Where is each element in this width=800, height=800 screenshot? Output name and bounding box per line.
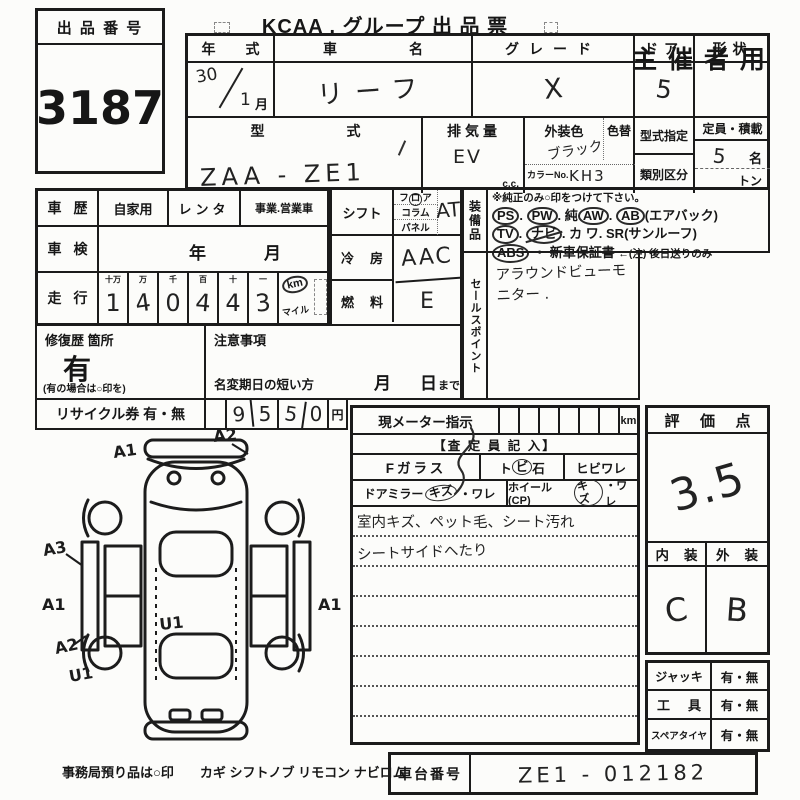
assessor-note-row [353, 627, 637, 657]
meter-digit-cell [580, 408, 600, 435]
km-unit: km [281, 273, 310, 295]
damage-mark: U1 [67, 663, 94, 686]
check-tick [398, 140, 406, 155]
equip-ab-suffix: (エアバック) [645, 208, 718, 223]
headlight-left [168, 472, 180, 484]
meter-unit: km [620, 408, 637, 435]
year-cell: 30 1 月 [188, 63, 275, 118]
model-label: 型式 [251, 121, 361, 141]
year-value: 30 [194, 64, 219, 87]
equip-ab: AB [616, 207, 645, 226]
car-damage-diagram: A1 A2 A3 A1 A2 U1 U1 A1 [36, 428, 348, 750]
mileage-unit-cell: km マイル [279, 273, 313, 323]
color-no-label: カラーNo. [527, 168, 569, 181]
assessor-note-1: 室内キズ、ペット毛、シート汚れ [353, 511, 575, 532]
spare-tire-value: 有・無 [712, 720, 767, 749]
sales-point-box: セールスポイント アラウンドビューモニター . [462, 251, 640, 400]
door-value: 5 [654, 74, 674, 105]
lot-number-label: 出 品 番 号 [38, 11, 162, 45]
recycle-digit: 5 [277, 398, 307, 429]
exterior-color-cell: 外装色 色替 ブラック カラーNo. KH3 [525, 118, 635, 193]
shift-label: シフト [332, 190, 394, 236]
load-unit: トン [738, 172, 762, 189]
displacement-label: 排気量 [423, 120, 525, 142]
mileage-digit: 4 [127, 283, 160, 323]
sales-point-label: セールスポイント [464, 253, 488, 398]
exterior-label: 外装 [716, 544, 758, 564]
color-no-divider [525, 164, 635, 165]
caution-box: 注意事項 名変期日の短い方 月 日 まで [204, 324, 462, 400]
dotted-mark-left [214, 22, 230, 33]
meter-digit-cell [520, 408, 540, 435]
model-value: ZAA - ZE1 [200, 158, 367, 192]
assessor-note-row [353, 597, 637, 627]
mileage-digit: 1 [99, 285, 127, 321]
lot-number-value: 3187 [38, 45, 162, 171]
sep: . [599, 226, 603, 241]
repair-box: 修復歴 箇所 有 (有の場合は○印を) [35, 324, 206, 400]
equipment-label: 装備品 [464, 190, 488, 251]
recycle-amount-box: 9 5 5 0 円 [204, 398, 348, 430]
car-name-value: リーフ [316, 67, 431, 112]
hood-line [151, 502, 241, 510]
capacity-value: 5 [712, 143, 727, 168]
specs-table: シフト フロア コラム パネル AT 冷房 AAC 燃料 E [330, 188, 462, 326]
accessories-box: ジャッキ 有・無 工具 有・無 スペアタイヤ 有・無 [645, 660, 770, 752]
assessor-note-row [353, 567, 637, 597]
mileage-digit: 4 [219, 285, 247, 321]
sep: . [562, 226, 566, 241]
assessor-header: 【査 定 員 記 入】 [353, 435, 637, 455]
assessor-note-row [353, 687, 637, 717]
damage-mark: A2 [53, 634, 80, 657]
damage-mark: A1 [318, 595, 342, 614]
year-label: 年式 [202, 39, 260, 59]
left-sill-panel [82, 542, 98, 650]
rename-suffix: まで [438, 377, 460, 393]
rename-day: 日 [420, 369, 437, 394]
mileage-digit: 3 [247, 284, 279, 323]
stone-chip-circled: ビ [512, 459, 533, 475]
capacity-label: 定員・積載 [695, 118, 770, 141]
capacity-divider [695, 168, 770, 169]
shift-value: AT [435, 197, 461, 223]
fender-fl [84, 500, 89, 536]
interior-grade: C [648, 567, 707, 652]
mileage-digit: 4 [187, 284, 218, 322]
vehicle-table: 年式 車名 グレード ドア 形状 30 1 月 リーフ X 5 型式 ZAA -… [185, 33, 770, 190]
color-no-value: KH3 [569, 167, 606, 185]
assessor-note-row [353, 657, 637, 687]
ac-label: 冷房 [341, 248, 383, 267]
door-mirror-label: ドアミラー [364, 485, 424, 502]
car-body [145, 462, 247, 732]
fuel-label: 燃料 [341, 292, 383, 311]
meter-box: 現メーター指示 km 【査 定 員 記 入】 Fガラス トビ石 ヒビワレ ドアミ… [350, 405, 640, 745]
fender-rr [299, 635, 304, 671]
damage-mark: U1 [158, 613, 184, 634]
shift-options-cell: フロア コラム パネル AT [394, 190, 460, 236]
equip-kawa: カ ワ [569, 226, 599, 241]
grade-value: X [542, 73, 564, 106]
office-deposit-note: 事務局預り品は○印 [62, 762, 174, 781]
digit-header: 十 [219, 274, 247, 285]
meter-digit-cell [600, 408, 620, 435]
recycle-digit: 9 [226, 399, 255, 430]
equip-aw-prefix: 純 [565, 208, 578, 223]
wheel-options-rest: ・ワレ [605, 477, 637, 509]
mileage-label: 走行 [48, 288, 88, 308]
sep: . [519, 208, 523, 223]
footer-note-row: 事務局預り品は○印 カギ シフトノブ リモコン ナビロム [62, 762, 406, 781]
inspection-cell: 年 月 [99, 227, 327, 273]
mileage-digit: 0 [159, 285, 187, 321]
rear-light-right [202, 710, 222, 720]
chassis-value: ZE1 - 012182 [471, 753, 756, 795]
equipment-note: ※純正のみ○印をつけて下さい。 [492, 191, 768, 207]
recycle-digit: 5 [253, 400, 279, 428]
recycle-label: リサイクル券 有・無 [37, 400, 204, 428]
windshield [160, 532, 232, 576]
shift-column-option: コラム [394, 205, 438, 220]
lot-number-box: 出 品 番 号 3187 [35, 8, 165, 174]
deposit-items: カギ シフトノブ リモコン ナビロム [200, 762, 406, 781]
grade-label: グレード [473, 36, 635, 63]
mark-leader-a3 [66, 554, 83, 566]
equipment-box: 装備品 ※純正のみ○印をつけて下さい。 PS. PW. 純AW. AB(エアバッ… [462, 188, 770, 253]
car-name-cell: リーフ [275, 63, 473, 118]
equip-sr: SR [606, 226, 624, 241]
equip-navi: ナビ [526, 225, 562, 244]
use-business: 事業.営業車 [241, 191, 327, 227]
stone-chip-option: トビ石 [481, 455, 565, 481]
recycle-label-box: リサイクル券 有・無 [35, 398, 206, 430]
sep: . [609, 208, 613, 223]
dotted-mark-right [544, 22, 558, 33]
right-sill-panel [294, 542, 310, 650]
digit-header: 十万 [99, 274, 127, 285]
shift-panel-option: パネル [394, 220, 438, 235]
wheel-front-left [89, 502, 121, 534]
shift-floor-f3: ア [422, 193, 432, 204]
shift-floor-circled: ロ [409, 193, 423, 206]
history-table: 車歴 自家用 レンタ 事業.営業車 車検 年 月 走行 十万1 万4 千0 百4… [35, 188, 330, 326]
chassis-box: 車台番号 ZE1 - 012182 [388, 752, 758, 795]
tool-value: 有・無 [712, 691, 767, 720]
door-cell: 5 [635, 63, 695, 118]
rename-label: 名変期日の短い方 [214, 374, 314, 393]
shape-label: 形状 [695, 36, 770, 63]
chassis-label: 車台番号 [391, 755, 471, 792]
capacity-cell: 定員・積載 5 名 トン [695, 118, 770, 193]
handwritten-squiggle [441, 424, 493, 498]
rename-month: 月 [374, 369, 391, 394]
assessor-note-row: シートサイドへたり [353, 537, 637, 567]
jack-label: ジャッキ [648, 663, 712, 691]
month-value: 1 [240, 90, 251, 110]
inspection-year: 年 [189, 239, 206, 264]
assessor-note-row: 室内キズ、ペット毛、シート汚れ [353, 507, 637, 537]
displacement-value: EV [453, 146, 482, 168]
interior-label: 内装 [656, 544, 698, 564]
wheel-front-right [266, 502, 298, 534]
history-label: 車歴 [48, 198, 88, 218]
sales-point-text: アラウンドビューモニター . [495, 259, 636, 306]
month-unit: 月 [255, 94, 268, 113]
inspection-month: 月 [264, 239, 281, 264]
use-private: 自家用 [99, 191, 169, 227]
grade-cell: X [473, 63, 635, 118]
damage-mark: A1 [42, 595, 66, 614]
sep: . [519, 226, 523, 241]
equip-pw: PW [527, 207, 558, 226]
wheel-scratch-circled: キズ [572, 477, 605, 508]
shape-cell [695, 63, 770, 118]
score-label: 評価点 [665, 410, 751, 431]
mile-unit: マイル [281, 302, 310, 319]
door-label: ドア [635, 36, 695, 63]
equip-sr-suffix: (サンルーフ) [624, 226, 697, 241]
displacement-cell: 排気量 EV c.c. [423, 118, 525, 193]
wheel-row: ホイール(CP) キズ ・ワレ [508, 481, 637, 507]
capacity-unit: 名 [749, 148, 762, 167]
type-designation-label: 型式指定 [635, 118, 695, 155]
color-change-label: 色替 [603, 120, 635, 140]
tool-label: 工具 [657, 695, 701, 714]
damage-mark: A1 [112, 440, 138, 462]
repair-note: (有の場合は○印を) [43, 380, 126, 395]
stone-chip-pre: ト [499, 458, 512, 477]
repair-label: 修復歴 箇所 [45, 330, 114, 349]
recycle-unit: 円 [329, 400, 346, 428]
auction-sheet: 出 品 番 号 3187 KCAA . グループ 出 品 票 主 催 者 用 年… [0, 0, 800, 800]
jack-value: 有・無 [712, 663, 767, 691]
damage-mark: A3 [41, 537, 67, 560]
rear-window [160, 634, 232, 678]
assessor-note-row [353, 717, 637, 742]
use-rental: レンタ [169, 191, 241, 227]
damage-mark: A2 [212, 428, 237, 446]
equip-ps: PS [492, 207, 519, 226]
car-name-label: 車名 [323, 39, 423, 59]
evaluation-box: 評価点 3.5 内装 外装 C B [645, 405, 770, 655]
assessor-note-2: シートサイドへたり [353, 538, 488, 564]
equip-tv: TV [492, 225, 519, 244]
spare-tire-label: スペアタイヤ [648, 720, 712, 749]
caution-label: 注意事項 [214, 330, 266, 349]
fender-fr [299, 500, 304, 536]
exterior-grade: B [707, 567, 767, 652]
sep: . [558, 208, 562, 223]
rear-light-left [170, 710, 190, 720]
equip-aw: AW [578, 207, 609, 226]
stone-chip-post: 石 [532, 458, 545, 477]
shift-floor-f1: フ [399, 193, 409, 204]
headlight-right [212, 472, 224, 484]
model-cell: 型式 ZAA - ZE1 [188, 118, 423, 193]
score-value: 3.5 [664, 453, 751, 523]
digit-header: 千 [159, 274, 187, 285]
inspection-label: 車検 [48, 239, 88, 259]
fuel-value: E [394, 281, 460, 322]
meter-digit-cell [560, 408, 580, 435]
ac-value: AAC [393, 234, 462, 283]
recycle-digit: 0 [305, 400, 329, 428]
mileage-extra-box [314, 279, 327, 315]
score-cell: 3.5 [648, 434, 767, 541]
wheel-label: ホイール(CP) [508, 479, 572, 507]
meter-digit-cell [540, 408, 560, 435]
equipment-content: ※純正のみ○印をつけて下さい。 PS. PW. 純AW. AB(エアバック) T… [492, 191, 768, 251]
meter-digit-cell [500, 408, 520, 435]
